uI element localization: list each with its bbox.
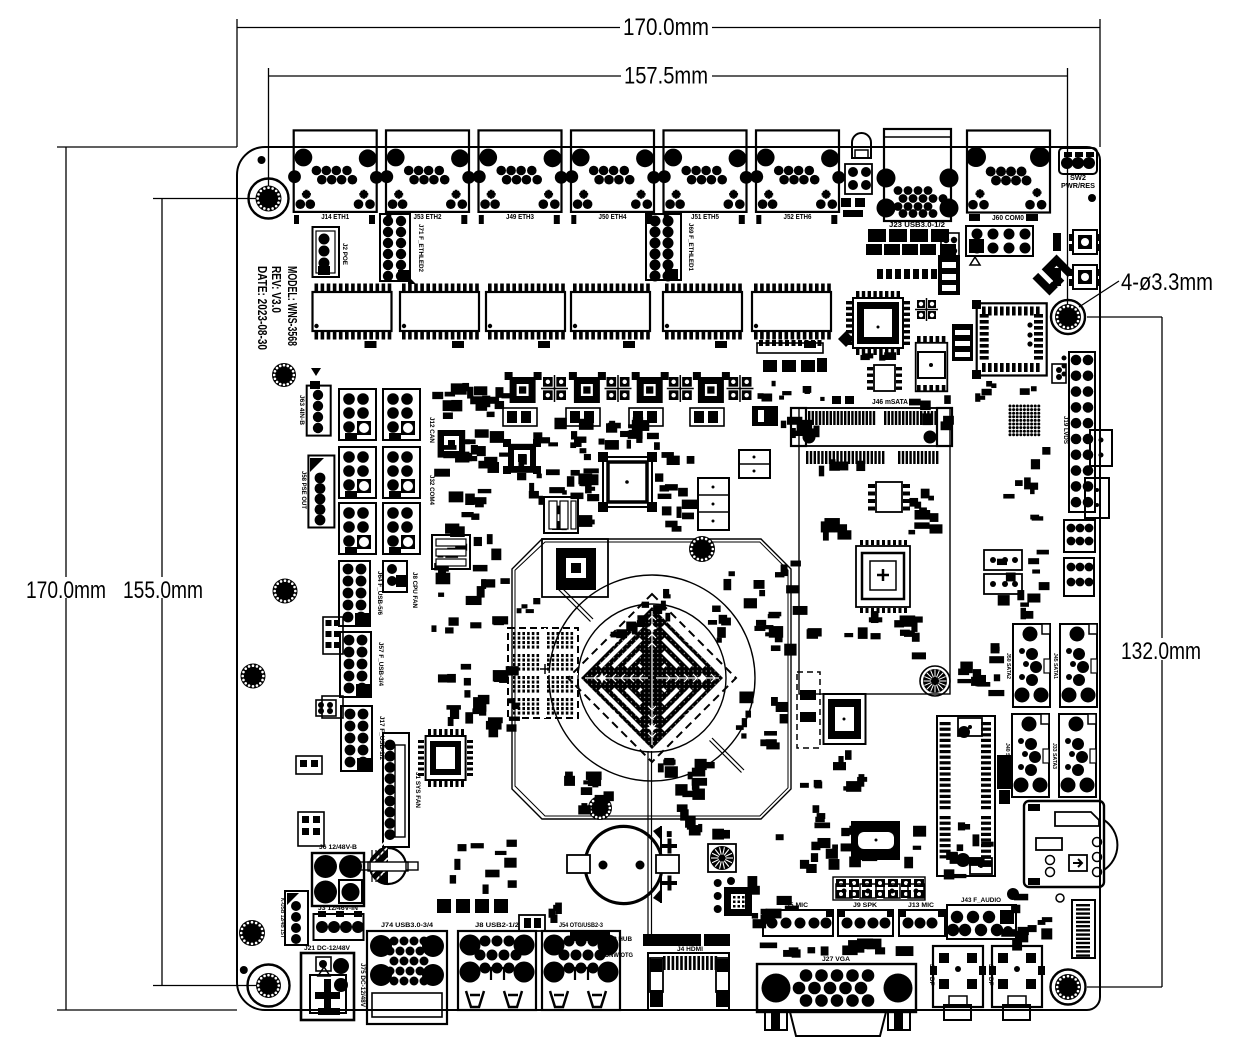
svg-text:J1 SYS FAN: J1 SYS FAN	[414, 772, 421, 808]
svg-text:J8 USB2-1/2: J8 USB2-1/2	[475, 922, 519, 929]
svg-text:J75 DC-12/48V: J75 DC-12/48V	[359, 963, 366, 1008]
svg-text:J21 DC-12/48V: J21 DC-12/48V	[304, 945, 351, 952]
svg-text:SW2: SW2	[1070, 175, 1086, 182]
svg-text:155.0mm: 155.0mm	[123, 577, 203, 604]
svg-text:J33 SATA3: J33 SATA3	[1051, 743, 1057, 769]
svg-text:J51 ETH5: J51 ETH5	[691, 214, 719, 221]
svg-text:J49 ETH3: J49 ETH3	[506, 214, 534, 221]
svg-text:J5 MIC: J5 MIC	[786, 902, 808, 909]
svg-text:J3 12/46V-IN: J3 12/46V-IN	[318, 905, 358, 912]
svg-text:132.0mm: 132.0mm	[1121, 638, 1201, 665]
svg-text:J6 12/48V-B: J6 12/48V-B	[319, 844, 357, 851]
svg-text:J57 F_USB-3/4: J57 F_USB-3/4	[377, 642, 384, 686]
svg-text:J52 ETH6: J52 ETH6	[784, 214, 812, 221]
svg-text:J64 F_USB-5/6: J64 F_USB-5/6	[376, 571, 383, 615]
svg-text:170.0mm: 170.0mm	[623, 14, 709, 41]
svg-text:J8 CPU FAN: J8 CPU FAN	[411, 572, 418, 608]
svg-text:J4 HDMI: J4 HDMI	[677, 946, 703, 953]
svg-text:PWR/RES: PWR/RES	[1061, 183, 1095, 190]
svg-text:REV: V3.0: REV: V3.0	[269, 266, 283, 313]
svg-text:J54 OTG/USB2-3: J54 OTG/USB2-3	[559, 922, 603, 929]
svg-text:J23 USB3.0-1/2: J23 USB3.0-1/2	[889, 222, 945, 229]
svg-text:4-ø3.3mm: 4-ø3.3mm	[1121, 269, 1213, 296]
svg-text:K-USB 12/4B 1ST: K-USB 12/4B 1ST	[279, 898, 285, 939]
svg-text:J2 POE: J2 POE	[341, 243, 348, 266]
svg-text:J58 PSE OUT: J58 PSE OUT	[300, 471, 307, 509]
svg-text:J46 mSATA: J46 mSATA	[872, 399, 908, 406]
svg-text:J63 4IN-B: J63 4IN-B	[298, 395, 305, 425]
svg-text:J50 ETH4: J50 ETH4	[599, 214, 627, 221]
svg-text:J12 CAN: J12 CAN	[428, 417, 435, 443]
svg-text:J14 ETH1: J14 ETH1	[321, 214, 349, 221]
svg-text:MODEL: WNS-3568: MODEL: WNS-3568	[285, 266, 299, 346]
svg-text:J69 F_ETHLED1: J69 F_ETHLED1	[687, 223, 694, 271]
svg-text:J43 F_AUDIO: J43 F_AUDIO	[961, 897, 1001, 904]
svg-text:J27 VGA: J27 VGA	[822, 956, 850, 963]
svg-text:J45 SATA1: J45 SATA1	[1052, 653, 1058, 679]
svg-text:J26 DP: J26 DP	[928, 964, 934, 986]
svg-text:J50 SATA2: J50 SATA2	[1005, 653, 1011, 679]
svg-text:J71 F_ETHLED2: J71 F_ETHLED2	[417, 224, 424, 272]
svg-text:J74 USB3.0-3/4: J74 USB3.0-3/4	[381, 922, 433, 929]
svg-text:J9 SPK: J9 SPK	[853, 902, 877, 909]
svg-text:J60 COM0: J60 COM0	[992, 215, 1024, 222]
svg-text:J53 ETH2: J53 ETH2	[414, 214, 442, 221]
svg-text:157.5mm: 157.5mm	[624, 63, 708, 90]
svg-text:J24 DP: J24 DP	[987, 964, 993, 986]
svg-text:J32 COM4: J32 COM4	[428, 475, 435, 505]
svg-text:DATE: 2023-08-30: DATE: 2023-08-30	[255, 266, 269, 350]
svg-text:J19 LVDS: J19 LVDS	[1062, 416, 1068, 444]
svg-text:J13 MIC: J13 MIC	[908, 902, 934, 909]
svg-text:170.0mm: 170.0mm	[26, 577, 106, 604]
